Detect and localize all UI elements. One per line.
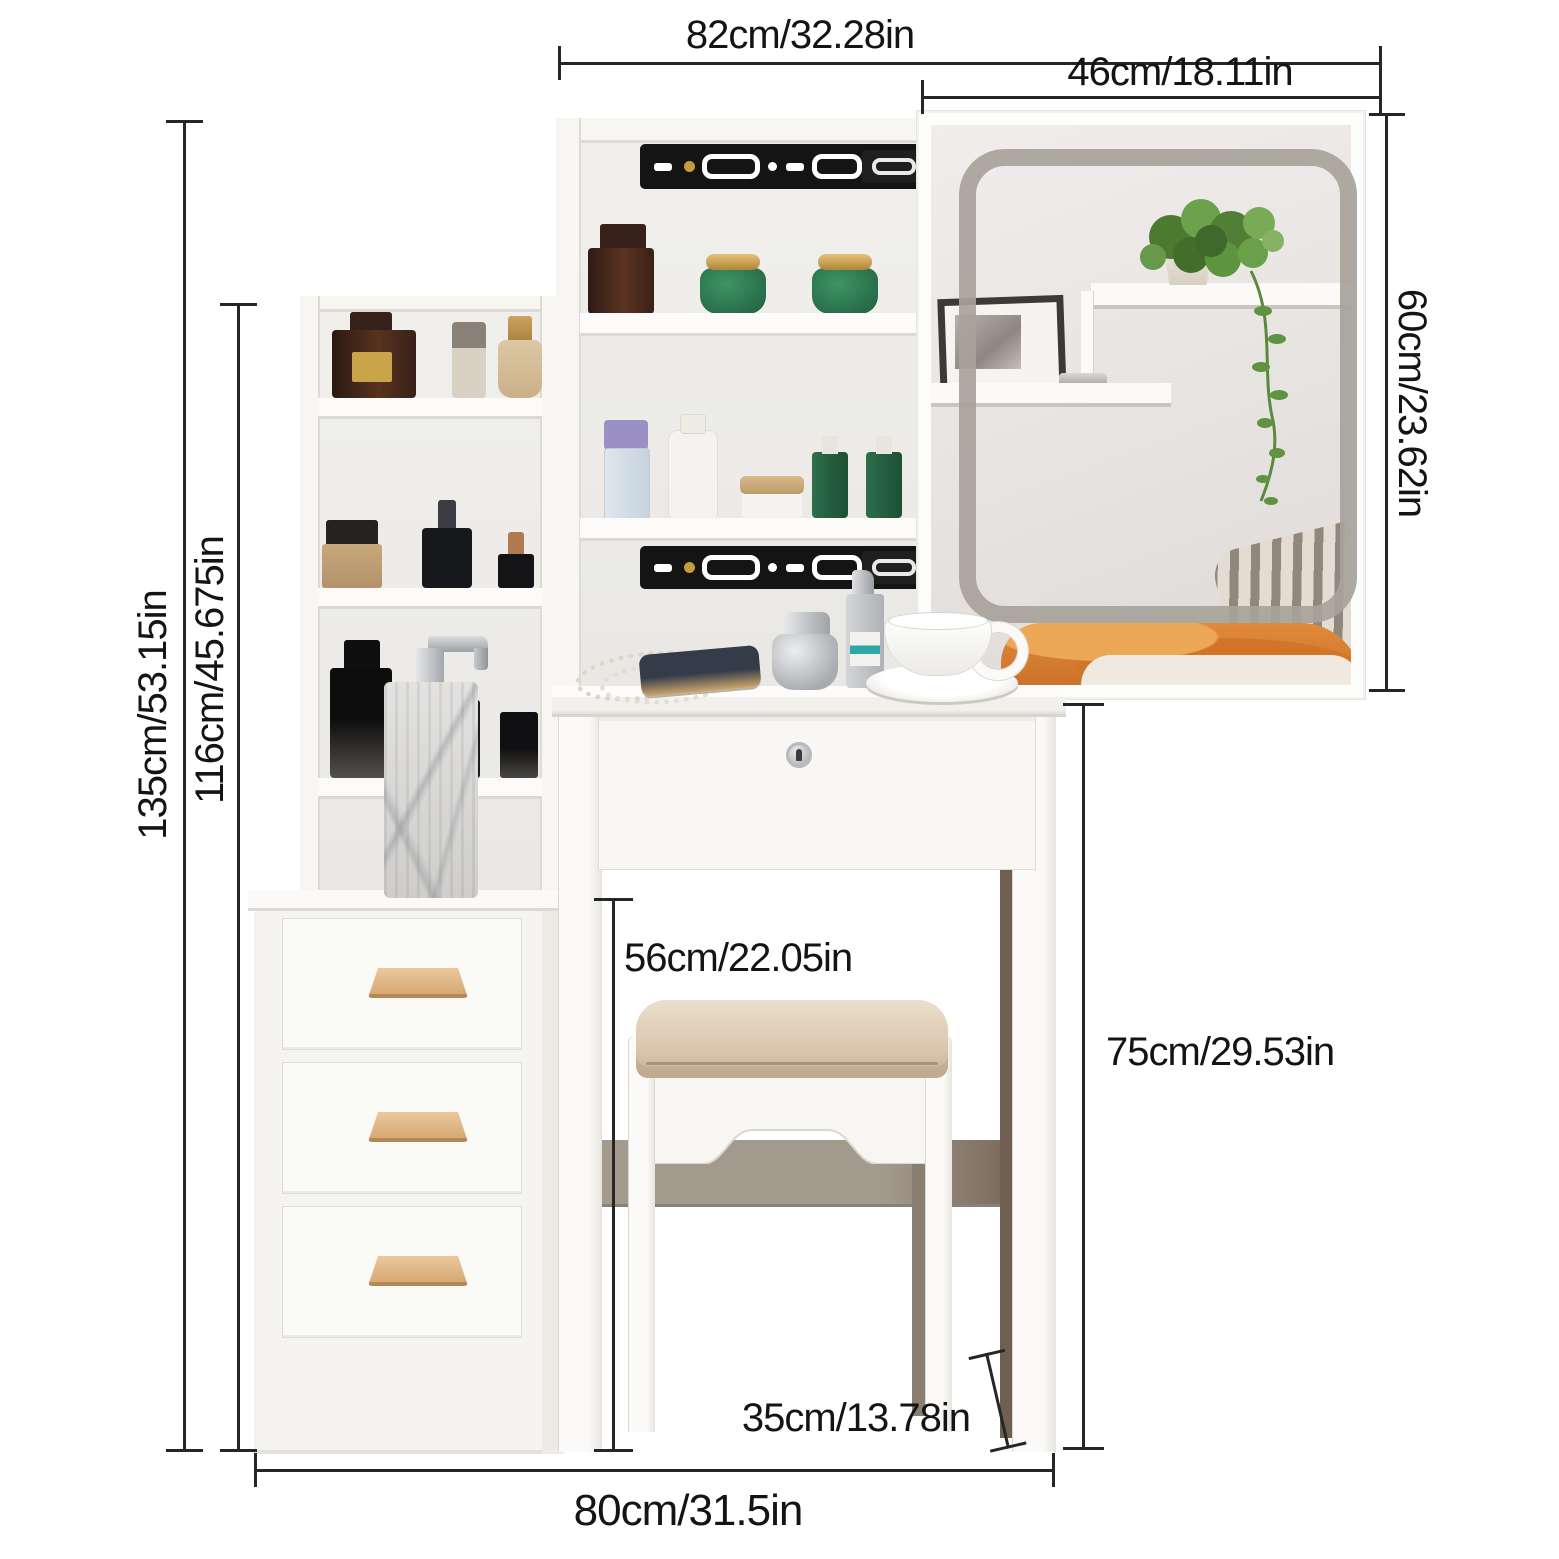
brown-perfume-label [352,352,392,382]
tan-foundation-bottle [322,544,382,588]
stool-cushion-seam [646,1062,938,1065]
cabinet-drawer-1-handle [368,968,468,998]
cabinet-drawer-3-handle [368,1256,468,1286]
dim-56-tick-bottom [594,1449,633,1452]
dim-80-tick-right [1052,1453,1055,1487]
green-dropper-1 [812,452,848,518]
reflected-bedding [1081,655,1351,685]
led-mirror [916,110,1366,700]
small-black-dropper [500,712,538,778]
amber-perfume-bottle [588,248,654,314]
dim-60-line [1385,115,1388,692]
stool-apron [654,1072,926,1164]
dim-116-label: 116cm/45.675in [188,520,232,820]
black-gradient-perfume [330,668,392,778]
copper-dropper-cap [508,532,524,556]
desk-left-leg [558,712,602,1452]
hutch-top-board [556,118,930,143]
hutch-shelf-board-1 [580,313,930,333]
dim-116-line [237,305,240,1452]
brown-perfume-cap [350,312,392,332]
beige-foundation-cap [508,316,532,342]
dim-46-tick-left [921,80,924,114]
tower-right-panel [540,296,560,896]
dim-56-label: 56cm/22.05in [624,936,904,981]
drawer-slide-rail-top [640,144,932,189]
dim-116-tick-bottom [220,1449,257,1452]
pump-bottle-label [850,632,880,666]
tower-left-panel [300,296,320,896]
dispenser-marble-body [384,682,478,898]
dim-75-label: 75cm/29.53in [1106,1030,1366,1075]
white-lotion-cap [680,414,706,434]
tower-shelf-board-2 [318,588,542,606]
dim-46-tick-right [1379,80,1382,114]
stool-right-leg [925,1036,952,1432]
dim-82-tick-left [558,46,561,80]
dim-116-tick-top [220,303,257,306]
dim-82-tick-right [1379,46,1382,80]
teacup-rim [888,612,988,630]
hutch-shelf-board-2 [580,518,930,538]
dim-56-tick-top [594,898,633,901]
dim-75-tick-top [1063,703,1104,706]
tower-shelf-board-1 [318,398,542,416]
dim-82-label: 82cm/32.28in [650,13,950,58]
dim-80-tick-left [254,1453,257,1487]
amber-perfume-cap [600,224,646,250]
tan-foundation-cap [326,520,378,546]
dim-56-line [612,900,615,1452]
green-dropper-1-cap [822,436,838,454]
green-cream-jar-1 [700,268,766,314]
green-dropper-2 [866,452,902,518]
toner-bottle-body [604,448,650,520]
white-lotion-bottle [668,430,718,520]
dim-135-tick-top [166,120,203,123]
dim-35-label: 35cm/13.78in [730,1396,970,1441]
dim-135-tick-bottom [166,1449,203,1452]
dim-135-label: 135cm/53.15in [131,570,175,860]
copper-serum-bottle [498,554,534,588]
dispenser-pump-nozzle [474,648,488,670]
stool-cushion [636,1000,948,1078]
vanity-set-dimension-diagram: 82cm/32.28in 46cm/18.11in 60cm/23.62in 1… [0,0,1559,1559]
dim-80-label: 80cm/31.5in [538,1486,838,1536]
dim-135-line [183,122,186,1452]
toner-bottle-purple-cap [604,420,648,450]
tower-top-board [300,296,560,312]
dim-60-label: 60cm/23.62in [1390,263,1434,543]
wood-lid-jar [742,492,802,518]
green-dropper-2-cap [876,436,892,454]
silver-pump-bottle-head [852,570,874,596]
black-serum-dropper-cap [438,500,456,530]
beige-foundation-bottle [498,340,542,398]
keyhole-slot [796,749,802,761]
black-serum-bottle [422,528,472,588]
stool-left-leg [628,1036,655,1432]
dim-80-line [256,1469,1055,1472]
silver-cream-jar [772,634,838,690]
dim-60-tick-bottom [1369,689,1405,692]
dispenser-pump-stem [416,648,444,686]
dim-60-tick-top [1369,113,1405,116]
green-cream-jar-1-lid [706,254,760,270]
green-cream-jar-2 [812,268,878,314]
wood-lid-jar-lid [740,476,804,494]
dim-75-line [1082,705,1085,1450]
drawer-slide-rail-bottom [640,546,932,589]
dim-75-tick-bottom [1063,1447,1104,1450]
dim-46-line [923,96,1382,99]
green-cream-jar-2-lid [818,254,872,270]
cabinet-drawer-2-handle [368,1112,468,1142]
dim-46-label: 46cm/18.11in [1030,50,1330,95]
mirror-led-strip [959,149,1357,623]
foundation-stick [452,322,486,398]
desk-drawer [598,716,1036,870]
